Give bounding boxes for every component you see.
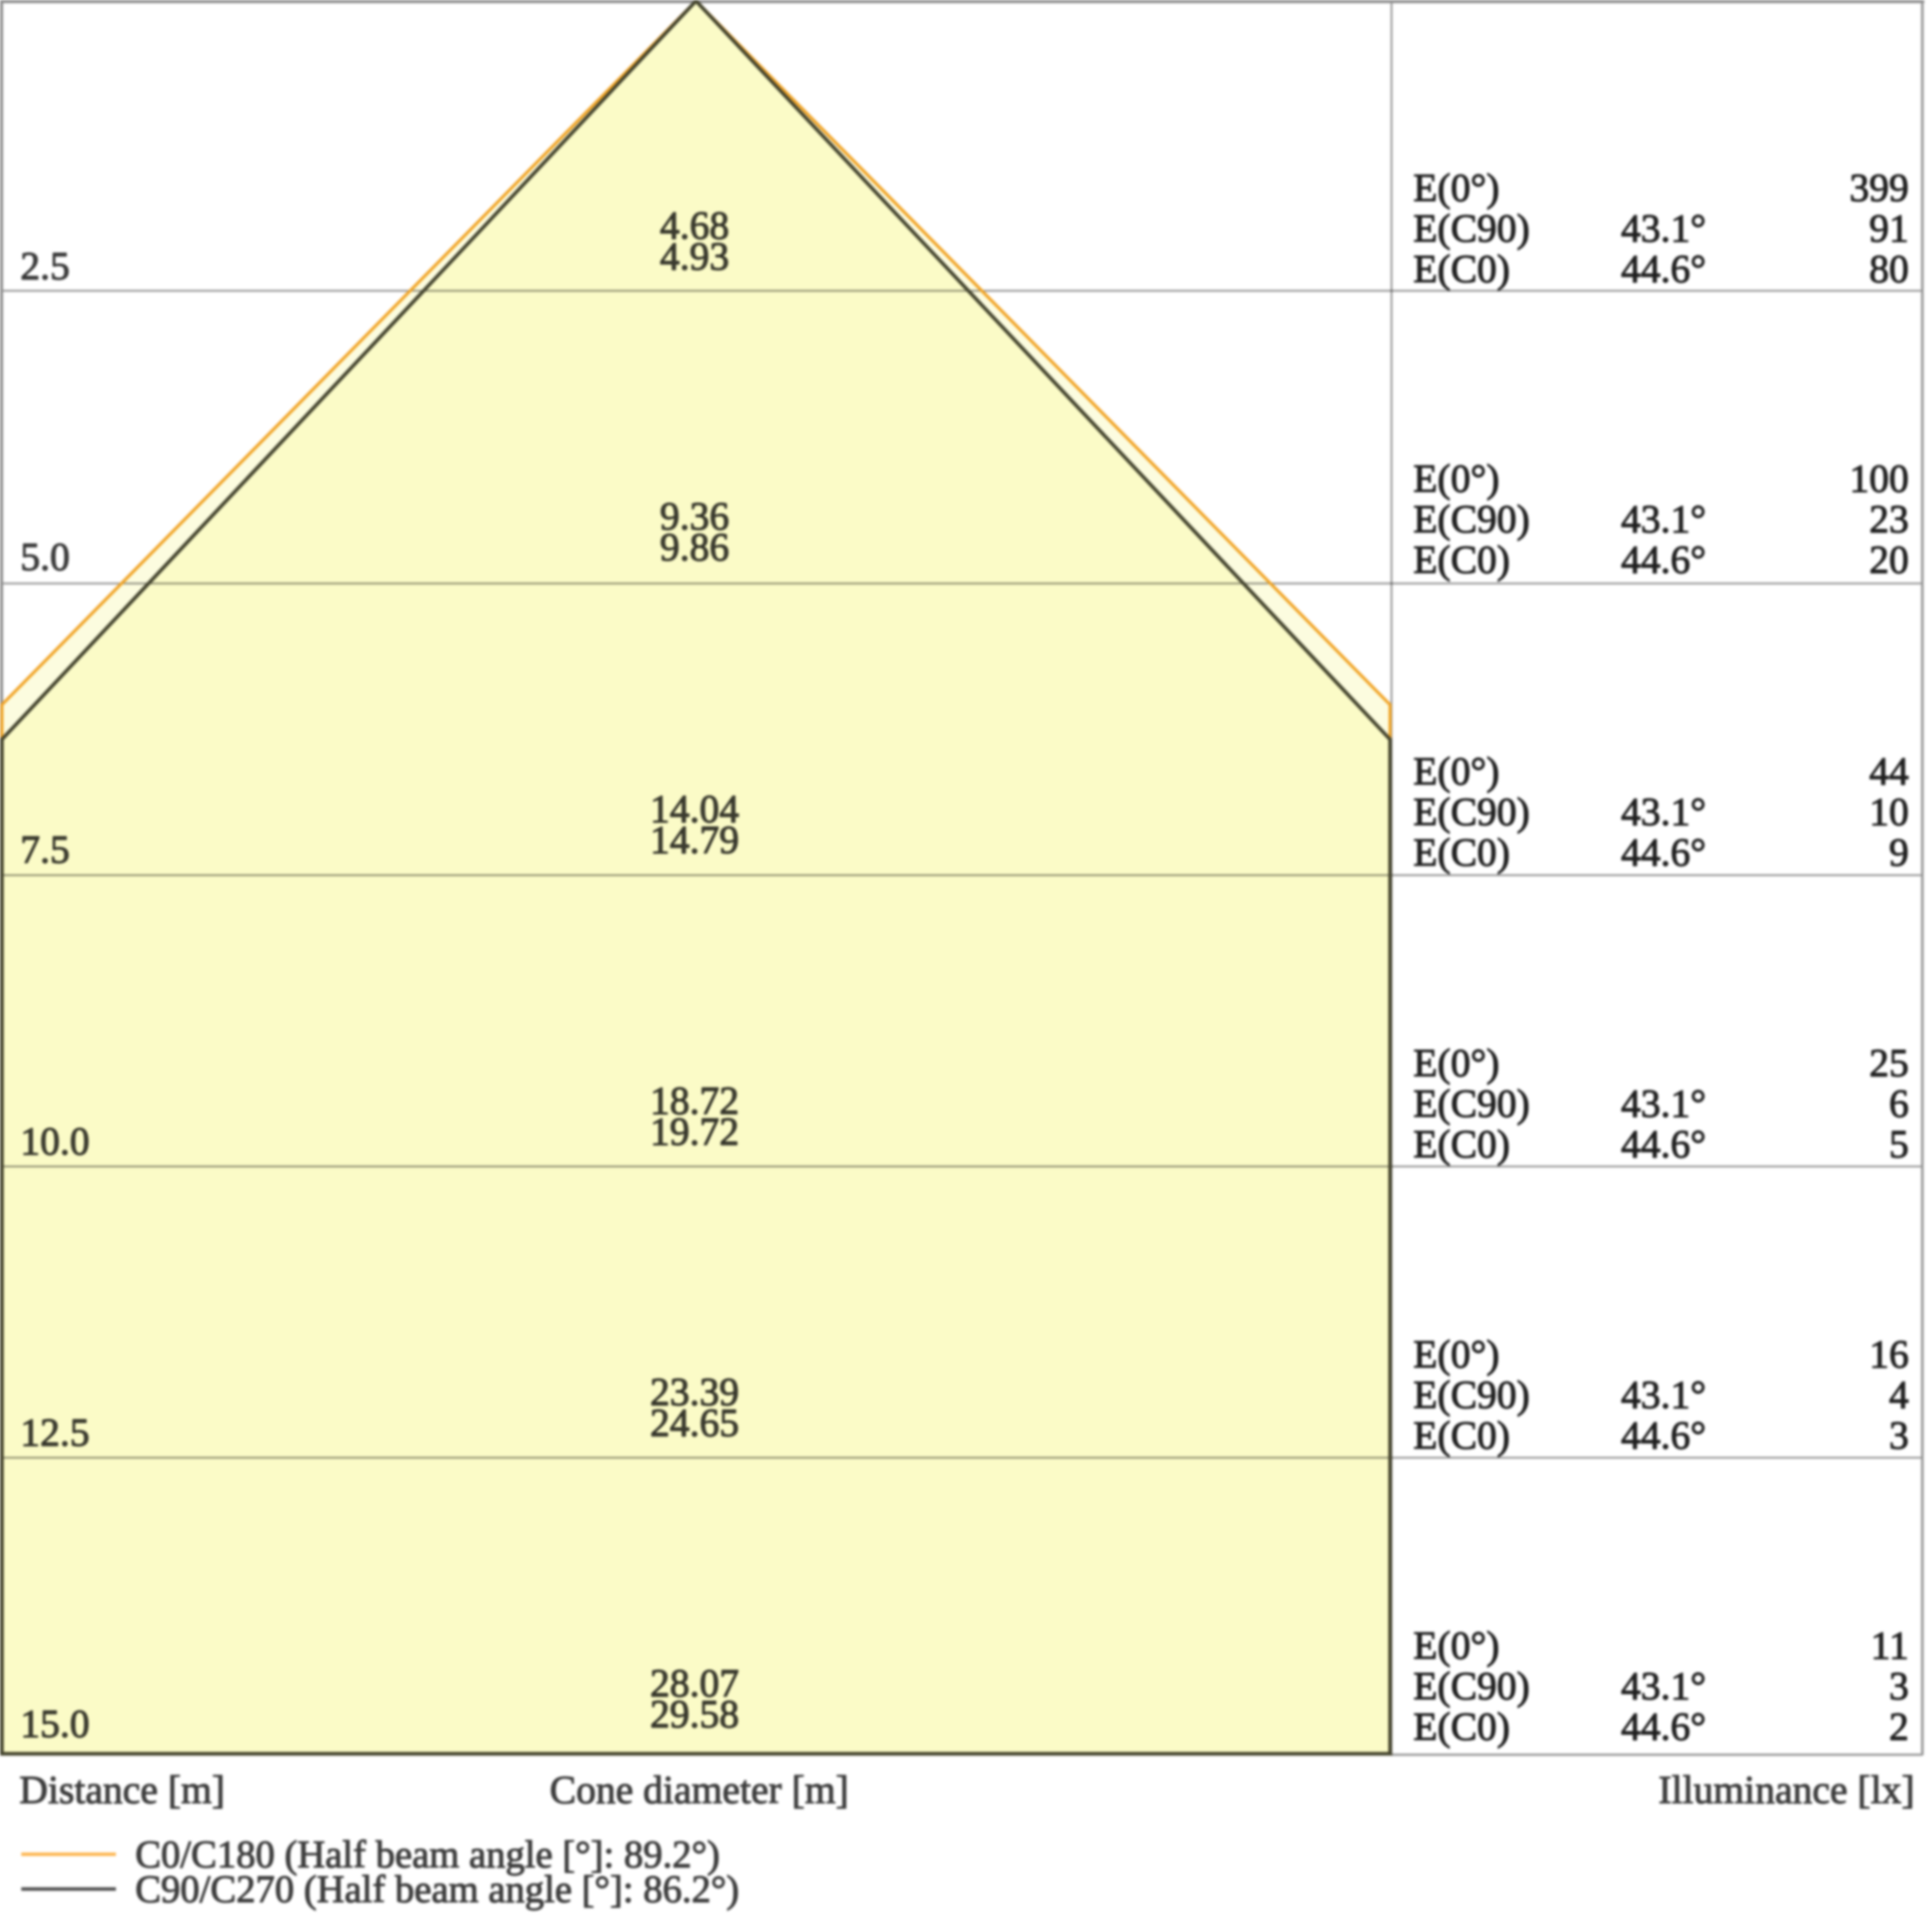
svg-text:E(C90): E(C90) [1413, 1081, 1530, 1125]
svg-text:3: 3 [1889, 1663, 1910, 1708]
svg-text:25: 25 [1869, 1040, 1909, 1085]
svg-text:E(0°): E(0°) [1413, 165, 1499, 210]
svg-text:16: 16 [1869, 1332, 1909, 1377]
svg-text:E(C0): E(C0) [1413, 1413, 1510, 1458]
svg-text:4.93: 4.93 [660, 234, 729, 278]
svg-text:3: 3 [1889, 1413, 1910, 1458]
svg-text:43.1°: 43.1° [1621, 1663, 1706, 1708]
svg-text:4: 4 [1889, 1373, 1910, 1417]
svg-text:23: 23 [1869, 497, 1909, 541]
svg-text:100: 100 [1850, 456, 1910, 500]
svg-text:2.5: 2.5 [20, 243, 70, 288]
svg-text:5: 5 [1889, 1122, 1910, 1166]
svg-text:Cone diameter [m]: Cone diameter [m] [550, 1768, 849, 1812]
svg-text:29.58: 29.58 [650, 1691, 739, 1736]
svg-text:11: 11 [1871, 1623, 1909, 1667]
svg-text:10: 10 [1869, 789, 1909, 834]
svg-text:2: 2 [1889, 1704, 1910, 1748]
svg-text:Illuminance [lx]: Illuminance [lx] [1659, 1768, 1915, 1812]
svg-text:43.1°: 43.1° [1621, 789, 1706, 834]
svg-text:91: 91 [1869, 206, 1909, 250]
svg-text:E(C0): E(C0) [1413, 1122, 1510, 1166]
svg-text:E(0°): E(0°) [1413, 749, 1499, 793]
svg-text:E(C90): E(C90) [1413, 206, 1530, 250]
svg-text:43.1°: 43.1° [1621, 1081, 1706, 1125]
svg-text:E(C0): E(C0) [1413, 830, 1510, 874]
svg-text:44.6°: 44.6° [1621, 537, 1706, 582]
svg-text:Distance [m]: Distance [m] [19, 1768, 225, 1812]
svg-text:10.0: 10.0 [20, 1119, 90, 1163]
svg-text:19.72: 19.72 [650, 1109, 739, 1153]
svg-text:E(C90): E(C90) [1413, 1663, 1530, 1708]
svg-text:14.79: 14.79 [650, 817, 739, 862]
svg-text:43.1°: 43.1° [1621, 206, 1706, 250]
svg-text:5.0: 5.0 [20, 534, 70, 579]
svg-text:80: 80 [1869, 246, 1909, 291]
svg-text:44.6°: 44.6° [1621, 1413, 1706, 1458]
svg-text:E(C0): E(C0) [1413, 537, 1510, 582]
svg-text:12.5: 12.5 [20, 1410, 90, 1455]
svg-text:399: 399 [1850, 165, 1910, 210]
svg-text:24.65: 24.65 [650, 1401, 739, 1445]
svg-text:E(0°): E(0°) [1413, 1623, 1499, 1667]
svg-text:E(C0): E(C0) [1413, 246, 1510, 291]
svg-text:20: 20 [1869, 537, 1909, 582]
svg-text:44.6°: 44.6° [1621, 830, 1706, 874]
svg-text:44.6°: 44.6° [1621, 1122, 1706, 1166]
svg-text:E(C0): E(C0) [1413, 1704, 1510, 1748]
svg-text:15.0: 15.0 [20, 1701, 90, 1746]
svg-text:44: 44 [1869, 749, 1909, 793]
svg-text:E(0°): E(0°) [1413, 456, 1499, 500]
svg-text:7.5: 7.5 [20, 827, 70, 871]
svg-text:C90/C270 (Half beam angle [°]:: C90/C270 (Half beam angle [°]: 86.2°) [135, 1867, 739, 1911]
svg-text:9: 9 [1889, 830, 1910, 874]
svg-text:E(0°): E(0°) [1413, 1332, 1499, 1377]
svg-text:43.1°: 43.1° [1621, 1373, 1706, 1417]
svg-text:9.86: 9.86 [660, 525, 729, 569]
svg-text:E(C90): E(C90) [1413, 497, 1530, 541]
svg-text:6: 6 [1889, 1081, 1910, 1125]
svg-text:44.6°: 44.6° [1621, 246, 1706, 291]
svg-text:44.6°: 44.6° [1621, 1704, 1706, 1748]
svg-text:E(0°): E(0°) [1413, 1040, 1499, 1085]
svg-text:E(C90): E(C90) [1413, 1373, 1530, 1417]
svg-text:E(C90): E(C90) [1413, 789, 1530, 834]
svg-text:43.1°: 43.1° [1621, 497, 1706, 541]
